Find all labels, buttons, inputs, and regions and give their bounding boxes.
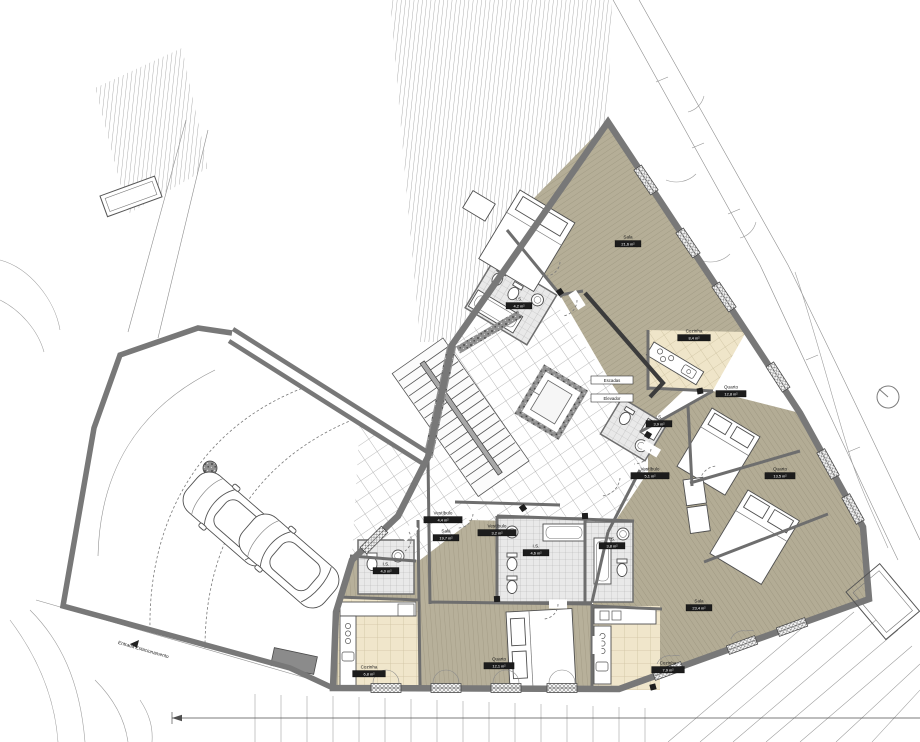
svg-text:Elevador: Elevador	[604, 396, 622, 401]
svg-text:4,6 m²: 4,6 m²	[530, 551, 542, 556]
svg-text:12,8 m²: 12,8 m²	[724, 392, 738, 397]
contour-lines	[0, 260, 152, 742]
svg-text:Sala: Sala	[694, 599, 704, 604]
svg-text:I.S.: I.S.	[609, 537, 616, 542]
svg-text:I.S.: I.S.	[383, 562, 390, 567]
svg-text:19,7 m²: 19,7 m²	[439, 536, 453, 541]
svg-text:12,1 m²: 12,1 m²	[492, 664, 506, 669]
svg-text:Cozinha: Cozinha	[686, 329, 703, 334]
svg-text:5,1 m²: 5,1 m²	[644, 474, 656, 479]
dimension-line	[172, 712, 920, 724]
svg-text:Vestíbulo: Vestíbulo	[488, 524, 507, 529]
svg-text:7,9 m²: 7,9 m²	[662, 668, 674, 673]
svg-text:Escadas: Escadas	[604, 378, 620, 383]
bed	[506, 609, 576, 688]
svg-text:Quarto: Quarto	[492, 657, 506, 662]
drive-kerb	[98, 370, 215, 556]
svg-text:4,0 m²: 4,0 m²	[380, 569, 392, 574]
svg-text:4,4 m²: 4,4 m²	[437, 518, 449, 523]
svg-text:21,6 m²: 21,6 m²	[621, 242, 635, 247]
svg-text:3,2 m²: 3,2 m²	[491, 531, 503, 536]
parking-entrance-label: Entrada Estacionamento	[117, 640, 169, 660]
svg-text:Cozinha: Cozinha	[361, 665, 378, 670]
svg-text:Sala: Sala	[441, 529, 451, 534]
svg-text:I.S.: I.S.	[656, 415, 663, 420]
svg-text:23,4 m²: 23,4 m²	[692, 606, 706, 611]
diagonal-wall	[229, 329, 429, 465]
parking-area: Entrada Estacionamento	[36, 370, 352, 682]
svg-text:I.S.: I.S.	[516, 297, 523, 302]
svg-text:4,2 m²: 4,2 m²	[513, 304, 525, 309]
svg-text:I.S.: I.S.	[533, 544, 540, 549]
svg-text:Quarto: Quarto	[724, 385, 738, 390]
svg-text:Vestíbulo: Vestíbulo	[434, 511, 453, 516]
floor-plan-drawing: Entrada Estacionamento	[0, 0, 920, 742]
floor-plan-canvas: Entrada Estacionamento	[0, 0, 920, 742]
survey-point-icon	[877, 386, 899, 408]
svg-text:Sala: Sala	[623, 235, 633, 240]
room-label: Quarto12,8 m²	[716, 385, 746, 398]
stairs-label: Escadas	[591, 376, 633, 384]
svg-text:Vestíbulo: Vestíbulo	[641, 467, 660, 472]
svg-text:8,4 m²: 8,4 m²	[688, 336, 700, 341]
elevator-label: Elevador	[591, 394, 633, 402]
svg-text:Cozinha: Cozinha	[660, 661, 677, 666]
svg-text:Quarto: Quarto	[773, 467, 787, 472]
svg-text:13,5 m²: 13,5 m²	[773, 474, 787, 479]
svg-text:6,8 m²: 6,8 m²	[363, 672, 375, 677]
svg-text:3,9 m²: 3,9 m²	[653, 422, 665, 427]
svg-text:3,8 m²: 3,8 m²	[606, 544, 618, 549]
